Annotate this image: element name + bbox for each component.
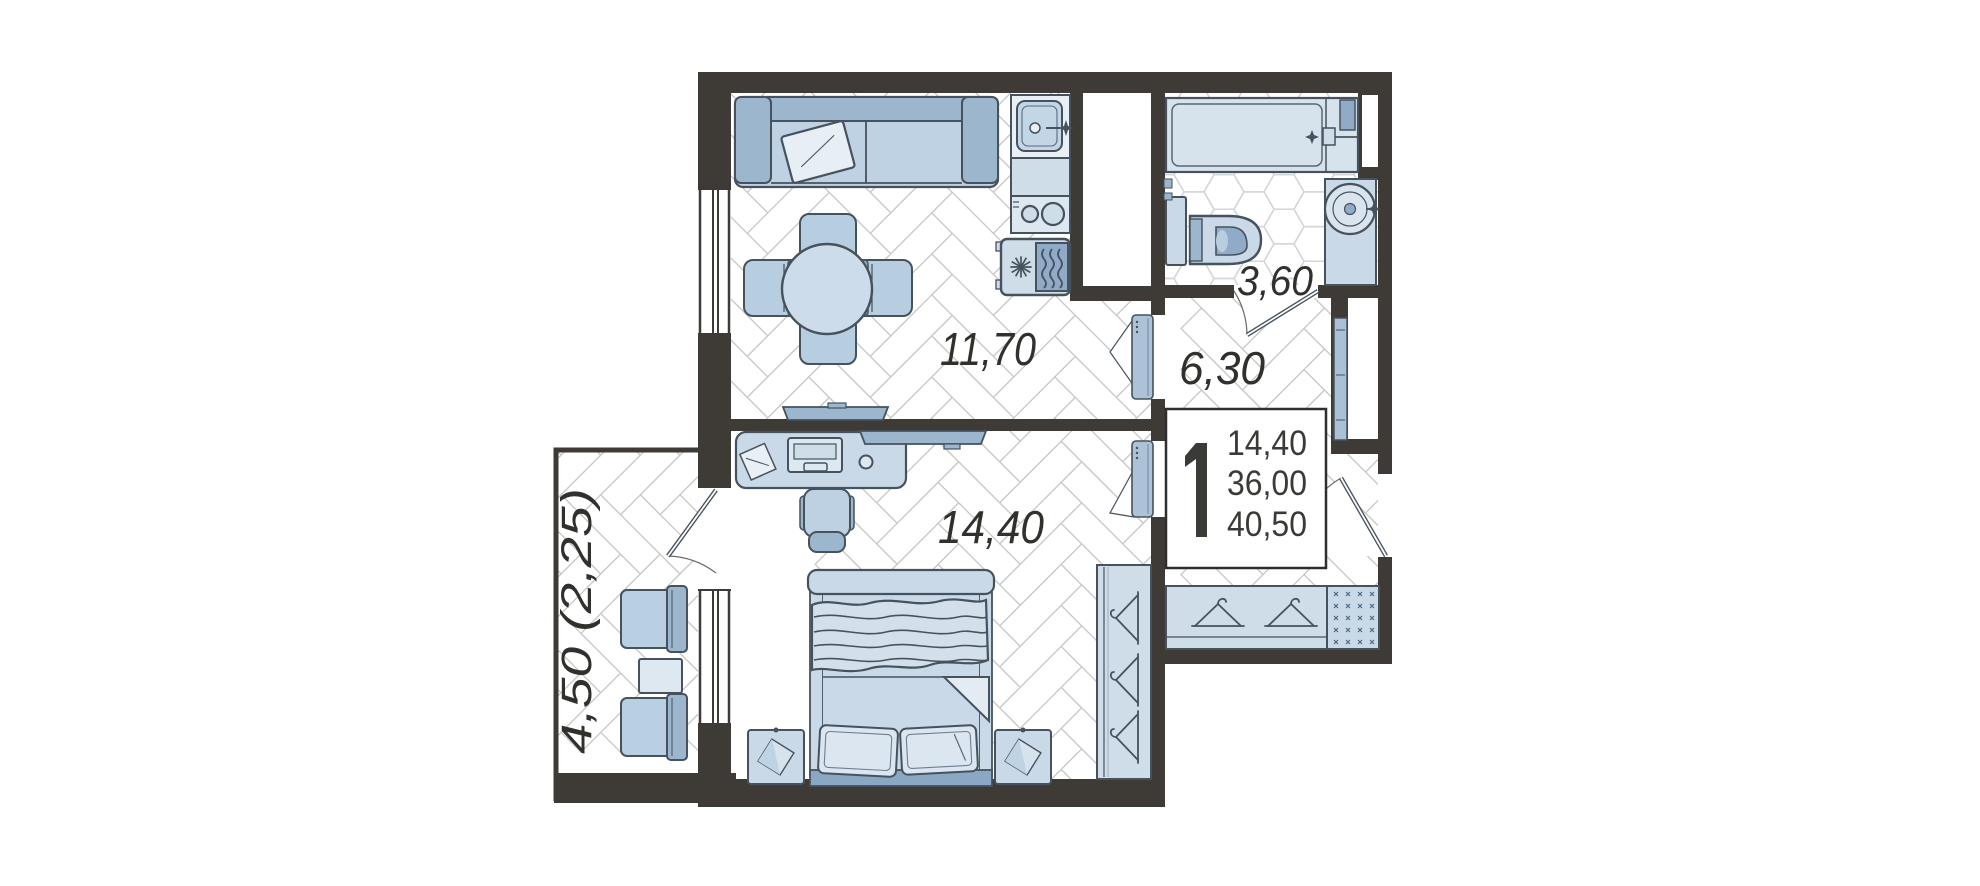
- svg-text:14,40: 14,40: [938, 501, 1044, 553]
- svg-text:40,50: 40,50: [1227, 505, 1307, 544]
- svg-text:6,30: 6,30: [1179, 342, 1265, 394]
- svg-text:36,00: 36,00: [1227, 464, 1307, 503]
- svg-text:14,40: 14,40: [1227, 424, 1307, 463]
- svg-text:3,60: 3,60: [1237, 257, 1314, 304]
- svg-text:11,70: 11,70: [940, 323, 1036, 375]
- svg-text:4,50 (2,25): 4,50 (2,25): [553, 488, 601, 754]
